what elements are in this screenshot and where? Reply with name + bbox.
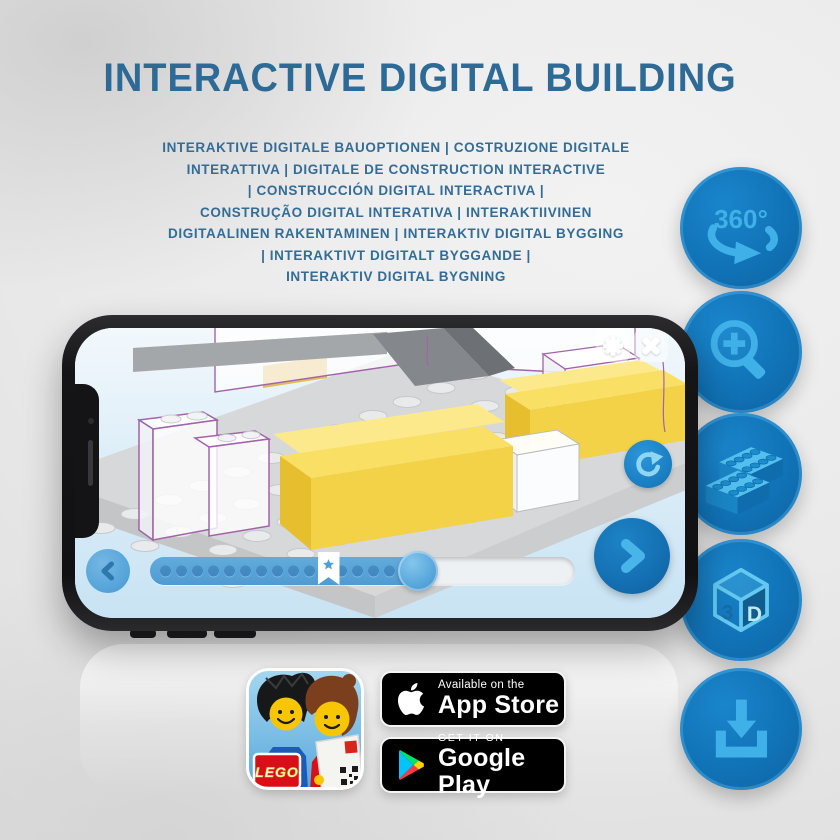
google-play-text: GET IT ON Google Play <box>438 732 564 799</box>
page-subtitle: INTERAKTIVE DIGITALE BAUOPTIONEN | COSTR… <box>96 137 696 288</box>
build-progress-bar[interactable] <box>150 557 575 585</box>
prev-chevron-icon <box>97 560 119 582</box>
zoom-in-icon <box>699 310 783 394</box>
progress-thumb[interactable] <box>398 551 438 591</box>
previous-step-button[interactable] <box>86 549 130 593</box>
phone-screen <box>75 328 685 618</box>
feature-zoom-button[interactable] <box>680 291 802 413</box>
close-icon <box>639 334 663 358</box>
apple-icon <box>395 683 427 715</box>
rotation-360-icon: 360° <box>699 186 783 270</box>
google-play-icon <box>395 749 427 781</box>
rotate-reset-button[interactable] <box>624 440 672 488</box>
app-store-badge[interactable]: Available on the App Store <box>380 671 566 727</box>
earpiece-speaker <box>88 440 93 486</box>
bookmark-star-icon <box>322 558 335 571</box>
close-button[interactable] <box>634 329 668 362</box>
lego-app-icon[interactable]: LEGO <box>246 668 364 790</box>
settings-gear-icon <box>601 334 625 358</box>
google-play-name: Google Play <box>438 745 564 799</box>
phone-reflection <box>80 644 678 794</box>
feature-brick-button[interactable] <box>680 413 802 535</box>
google-play-badge[interactable]: GET IT ON Google Play <box>380 737 566 793</box>
next-step-button[interactable] <box>594 518 670 594</box>
rotate-reset-icon <box>631 447 665 481</box>
download-icon <box>699 687 783 771</box>
brick-icon <box>699 432 783 516</box>
progress-dots <box>160 566 418 577</box>
page-title: INTERACTIVE DIGITAL BUILDING <box>21 56 819 101</box>
feature-360-button[interactable]: 360° <box>680 167 802 289</box>
feature-3d-button[interactable]: 3 D <box>680 539 802 661</box>
poster: INTERACTIVE DIGITAL BUILDING INTERAKTIVE… <box>0 0 840 840</box>
rotation-360-label: 360° <box>714 204 768 234</box>
cube-d-label: D <box>747 603 762 626</box>
lego-app-icon-art: LEGO <box>246 668 364 790</box>
front-camera <box>88 418 94 424</box>
cube-3-label: 3 <box>722 601 734 624</box>
next-chevron-icon <box>612 536 652 576</box>
lego-logo-text: LEGO <box>255 764 299 780</box>
phone-notch <box>75 384 99 538</box>
settings-button[interactable] <box>596 329 630 362</box>
progress-fill <box>150 557 418 585</box>
cube-3d-icon: 3 D <box>699 558 783 642</box>
google-play-tagline: GET IT ON <box>438 732 564 745</box>
phone-mockup <box>62 315 698 631</box>
app-store-name: App Store <box>438 692 559 719</box>
feature-download-button[interactable] <box>680 668 802 790</box>
app-store-text: Available on the App Store <box>438 679 559 719</box>
